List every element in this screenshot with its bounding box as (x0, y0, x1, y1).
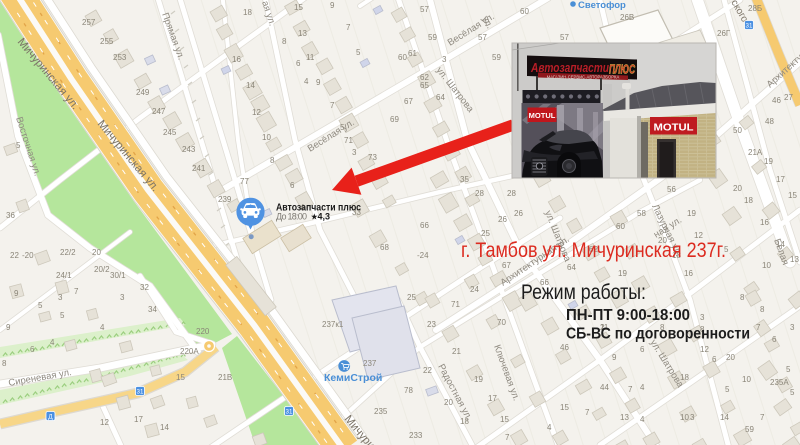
svg-text:10: 10 (762, 261, 771, 270)
svg-text:59: 59 (745, 425, 754, 434)
svg-text:3: 3 (120, 293, 125, 302)
svg-text:19: 19 (474, 375, 483, 384)
svg-text:14: 14 (160, 423, 169, 432)
svg-text:36: 36 (6, 211, 15, 220)
svg-text:31: 31 (746, 22, 753, 29)
svg-text:237: 237 (363, 359, 377, 368)
svg-text:27: 27 (784, 93, 793, 102)
svg-text:10: 10 (680, 413, 689, 422)
svg-text:21А: 21А (748, 148, 763, 157)
svg-text:8: 8 (2, 359, 7, 368)
svg-text:7: 7 (346, 23, 351, 32)
svg-text:15: 15 (294, 3, 303, 12)
svg-text:26: 26 (498, 215, 507, 224)
svg-text:220: 220 (196, 327, 210, 336)
svg-text:6: 6 (640, 345, 645, 354)
svg-text:10: 10 (742, 375, 751, 384)
svg-text:12: 12 (100, 418, 109, 427)
svg-text:22/2: 22/2 (60, 248, 76, 257)
svg-text:4: 4 (304, 77, 309, 86)
svg-text:25: 25 (481, 229, 490, 238)
svg-text:12: 12 (252, 108, 261, 117)
svg-text:56: 56 (667, 185, 676, 194)
svg-text:MOTUL: MOTUL (654, 122, 695, 134)
svg-text:3: 3 (690, 413, 695, 422)
svg-text:59: 59 (492, 53, 501, 62)
svg-text:64: 64 (436, 93, 445, 102)
svg-text:28Б: 28Б (748, 4, 762, 13)
svg-text:48: 48 (765, 117, 774, 126)
svg-text:62: 62 (420, 73, 429, 82)
svg-text:7: 7 (330, 101, 335, 110)
svg-text:9: 9 (330, 1, 335, 10)
svg-text:257: 257 (82, 18, 96, 27)
svg-text:26: 26 (514, 209, 523, 218)
svg-text:35: 35 (460, 175, 469, 184)
svg-text:4: 4 (640, 415, 645, 424)
svg-text:255: 255 (100, 37, 114, 46)
svg-text:71: 71 (344, 136, 353, 145)
svg-text:5: 5 (725, 385, 730, 394)
svg-text:57: 57 (478, 33, 487, 42)
svg-text:15: 15 (560, 403, 569, 412)
svg-text:220А: 220А (180, 347, 199, 356)
svg-text:73: 73 (368, 153, 377, 162)
svg-text:24/1: 24/1 (56, 271, 72, 280)
svg-text:60: 60 (520, 7, 529, 16)
svg-text:5: 5 (60, 311, 65, 320)
svg-text:5: 5 (38, 301, 43, 310)
svg-text:6: 6 (296, 59, 301, 68)
svg-text:19: 19 (764, 157, 773, 166)
svg-text:20: 20 (92, 248, 101, 257)
svg-text:-24: -24 (417, 251, 429, 260)
svg-text:30/1: 30/1 (110, 271, 126, 280)
svg-text:СБ-ВС по договоренности: СБ-ВС по договоренности (566, 326, 750, 343)
svg-text:67: 67 (404, 97, 413, 106)
svg-text:6: 6 (290, 181, 295, 190)
svg-text:7: 7 (74, 287, 79, 296)
svg-text:5: 5 (786, 365, 791, 374)
svg-text:5: 5 (356, 48, 361, 57)
svg-text:КемиСтрой: КемиСтрой (324, 372, 382, 384)
svg-text:59: 59 (428, 33, 437, 42)
svg-text:65: 65 (420, 81, 429, 90)
svg-text:21В: 21В (218, 373, 232, 382)
svg-text:16: 16 (232, 55, 241, 64)
svg-text:247: 247 (152, 107, 166, 116)
svg-text:57: 57 (420, 5, 429, 14)
svg-text:6: 6 (30, 345, 35, 354)
svg-text:18: 18 (243, 8, 252, 17)
svg-text:18: 18 (744, 196, 753, 205)
svg-text:26В: 26В (620, 13, 634, 22)
svg-text:9: 9 (6, 323, 11, 332)
svg-text:20/2: 20/2 (94, 265, 110, 274)
svg-text:26Г: 26Г (717, 29, 731, 38)
svg-text:69: 69 (390, 115, 399, 124)
svg-text:Светофор: Светофор (578, 0, 626, 11)
svg-text:58: 58 (637, 209, 646, 218)
svg-text:14: 14 (720, 413, 729, 422)
svg-text:5: 5 (790, 388, 795, 397)
svg-text:13: 13 (298, 29, 307, 38)
svg-text:7: 7 (760, 413, 765, 422)
svg-text:17: 17 (488, 394, 497, 403)
svg-text:16: 16 (684, 269, 693, 278)
svg-text:6: 6 (712, 355, 717, 364)
svg-text:9: 9 (316, 78, 321, 87)
svg-text:68: 68 (380, 243, 389, 252)
svg-text:8: 8 (282, 37, 287, 46)
svg-text:19: 19 (618, 269, 627, 278)
svg-text:13: 13 (790, 255, 799, 264)
svg-text:11: 11 (306, 53, 315, 62)
svg-text:19: 19 (687, 209, 696, 218)
svg-text:15: 15 (500, 415, 509, 424)
svg-text:28: 28 (475, 189, 484, 198)
svg-text:28: 28 (507, 189, 516, 198)
svg-text:4: 4 (50, 338, 55, 347)
svg-text:24: 24 (470, 285, 479, 294)
svg-text:7: 7 (756, 323, 761, 332)
svg-text:22: 22 (10, 251, 19, 260)
svg-text:34: 34 (148, 305, 157, 314)
svg-text:233: 233 (409, 431, 423, 440)
svg-text:25: 25 (407, 293, 416, 302)
svg-text:78: 78 (404, 386, 413, 395)
svg-text:г. Тамбов ул. Мичуринская 237г: г. Тамбов ул. Мичуринская 237г. (461, 239, 726, 262)
svg-text:235А: 235А (770, 378, 789, 387)
svg-text:235: 235 (374, 407, 388, 416)
svg-text:17: 17 (134, 415, 143, 424)
svg-text:4: 4 (100, 323, 105, 332)
svg-text:15: 15 (788, 191, 797, 200)
svg-text:9: 9 (612, 353, 617, 362)
svg-text:67: 67 (502, 261, 511, 270)
svg-text:245: 245 (163, 128, 177, 137)
svg-text:3: 3 (442, 55, 447, 64)
svg-text:3: 3 (700, 313, 705, 322)
svg-text:71: 71 (451, 300, 460, 309)
svg-text:20: 20 (444, 398, 453, 407)
svg-text:46: 46 (560, 343, 569, 352)
svg-text:239: 239 (218, 195, 232, 204)
svg-text:17: 17 (776, 175, 785, 184)
svg-text:20: 20 (733, 184, 742, 193)
svg-text:6: 6 (772, 335, 777, 344)
svg-text:237к1: 237к1 (322, 320, 344, 329)
svg-text:МАГАЗИН·СЕРВИС·АВТОРАЗБОРКА: МАГАЗИН·СЕРВИС·АВТОРАЗБОРКА (547, 75, 620, 80)
svg-text:-20: -20 (22, 251, 34, 260)
svg-text:ПН-ПТ 9:00-18:00: ПН-ПТ 9:00-18:00 (566, 307, 690, 324)
svg-text:10: 10 (262, 133, 271, 142)
svg-text:3: 3 (790, 323, 795, 332)
svg-text:21: 21 (452, 347, 461, 356)
svg-text:32: 32 (140, 283, 149, 292)
svg-text:9: 9 (14, 289, 19, 298)
svg-text:MOTUL: MOTUL (529, 111, 556, 120)
svg-text:15: 15 (176, 373, 185, 382)
svg-text:61: 61 (408, 49, 417, 58)
svg-text:22: 22 (423, 366, 432, 375)
svg-text:4,3: 4,3 (318, 211, 331, 221)
svg-text:249: 249 (136, 88, 150, 97)
svg-text:70: 70 (497, 318, 506, 327)
svg-text:До 18:00: До 18:00 (276, 211, 307, 221)
svg-text:8: 8 (760, 305, 765, 314)
svg-text:7: 7 (628, 385, 633, 394)
svg-text:12: 12 (700, 345, 709, 354)
svg-text:4: 4 (547, 423, 552, 432)
svg-text:8: 8 (740, 293, 745, 302)
svg-text:253: 253 (113, 53, 127, 62)
svg-text:23: 23 (427, 320, 436, 329)
svg-text:44: 44 (600, 383, 609, 392)
svg-text:243: 243 (182, 145, 196, 154)
svg-text:241: 241 (192, 164, 206, 173)
svg-text:13: 13 (620, 413, 629, 422)
svg-text:20: 20 (726, 353, 735, 362)
svg-text:64: 64 (567, 263, 576, 272)
svg-text:7: 7 (505, 433, 510, 442)
svg-text:5: 5 (16, 141, 21, 150)
svg-text:50: 50 (733, 126, 742, 135)
svg-text:57: 57 (560, 33, 569, 42)
svg-text:3: 3 (352, 148, 357, 157)
svg-text:60: 60 (616, 222, 625, 231)
svg-text:4: 4 (640, 383, 645, 392)
svg-text:7: 7 (585, 408, 590, 417)
svg-text:3: 3 (58, 293, 63, 302)
svg-text:8: 8 (270, 156, 275, 165)
svg-text:31: 31 (286, 408, 293, 415)
svg-text:46: 46 (772, 96, 781, 105)
svg-text:Режим работы:: Режим работы: (521, 281, 646, 304)
svg-text:77: 77 (240, 177, 249, 186)
svg-text:66: 66 (420, 221, 429, 230)
svg-text:16: 16 (760, 218, 769, 227)
svg-text:14: 14 (246, 81, 255, 90)
svg-text:31: 31 (137, 388, 144, 395)
svg-text:60: 60 (398, 53, 407, 62)
